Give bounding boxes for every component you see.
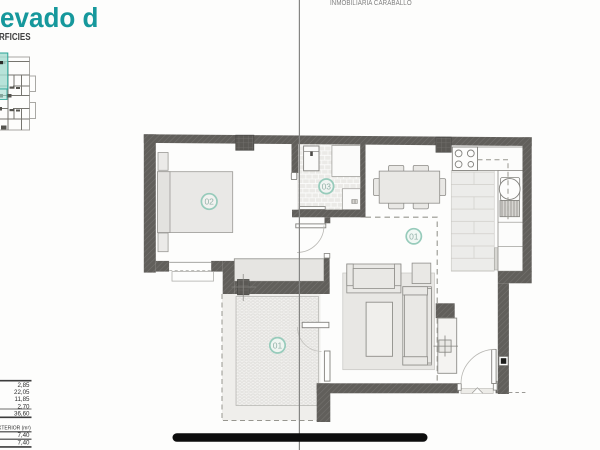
svg-text:03: 03 [322, 181, 332, 191]
svg-text:01: 01 [273, 340, 283, 350]
svg-text:01: 01 [409, 231, 419, 241]
svg-text:02: 02 [204, 197, 214, 207]
